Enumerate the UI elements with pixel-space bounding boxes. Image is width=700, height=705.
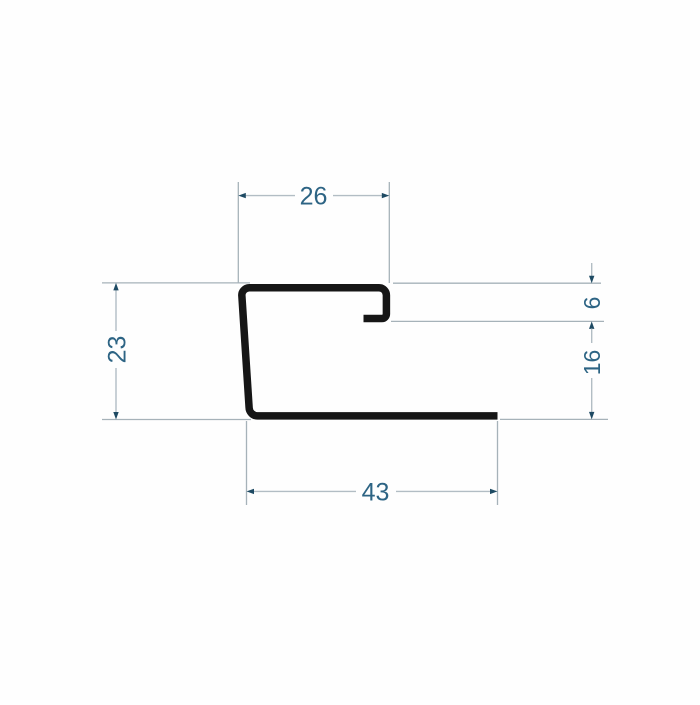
svg-text:16: 16 xyxy=(579,350,605,376)
svg-text:43: 43 xyxy=(362,479,390,507)
svg-text:23: 23 xyxy=(104,336,132,364)
svg-text:6: 6 xyxy=(579,297,605,310)
svg-text:26: 26 xyxy=(300,183,328,211)
